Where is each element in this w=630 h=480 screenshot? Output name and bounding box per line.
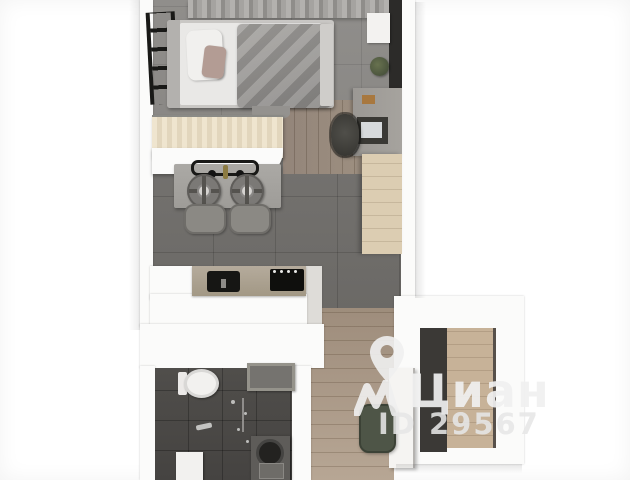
washer-door (259, 463, 284, 479)
shower-hose (242, 398, 244, 432)
shadow (129, 0, 140, 330)
floor-plan-render: Циан ID 29567 (0, 0, 630, 480)
double-bed (167, 20, 334, 108)
pouf (359, 404, 396, 453)
shower-fitting (246, 440, 249, 443)
entry-niche-floor (420, 328, 447, 452)
gas-burner (187, 174, 221, 208)
monitor-screen (361, 122, 382, 138)
burner-cap (240, 184, 254, 198)
desk (353, 88, 402, 156)
cooktop-knob (287, 270, 290, 273)
blanket (237, 24, 331, 108)
shower-fitting (231, 400, 235, 404)
wall-right (401, 0, 415, 300)
cooktop-knob (273, 270, 276, 273)
bar-stool (184, 204, 226, 234)
office-chair (331, 114, 359, 156)
bed-footboard (320, 24, 333, 106)
cooktop-knob (280, 270, 283, 273)
bar-stool (229, 204, 271, 234)
wardrobe (362, 154, 402, 254)
shower-fitting (237, 428, 240, 431)
shadow (396, 464, 522, 473)
shower-fitting (244, 412, 247, 415)
gas-tap (223, 165, 228, 179)
wall-hung-toilet (184, 369, 219, 398)
desk-monitor (357, 117, 388, 144)
wall-kitchen-side (305, 266, 322, 326)
bed-headboard (167, 20, 180, 108)
plant (370, 57, 389, 76)
bath-niche (247, 363, 295, 391)
wall-kitchen-front (150, 294, 307, 326)
wall-bath-left (140, 366, 155, 480)
gas-burner (230, 174, 264, 208)
burner-cap (197, 184, 211, 198)
desk-item (362, 95, 375, 104)
entry-wardrobe (447, 328, 496, 448)
wall-shelf (367, 13, 390, 43)
wall-mid-band (140, 324, 324, 368)
sink-faucet (221, 279, 226, 288)
bath-mat (176, 452, 203, 480)
accent-pillow (201, 45, 227, 79)
shadow (415, 2, 426, 298)
washing-machine (251, 436, 290, 480)
tv-panel (389, 0, 402, 96)
curtains (188, 0, 396, 18)
cooktop-knob (294, 270, 297, 273)
